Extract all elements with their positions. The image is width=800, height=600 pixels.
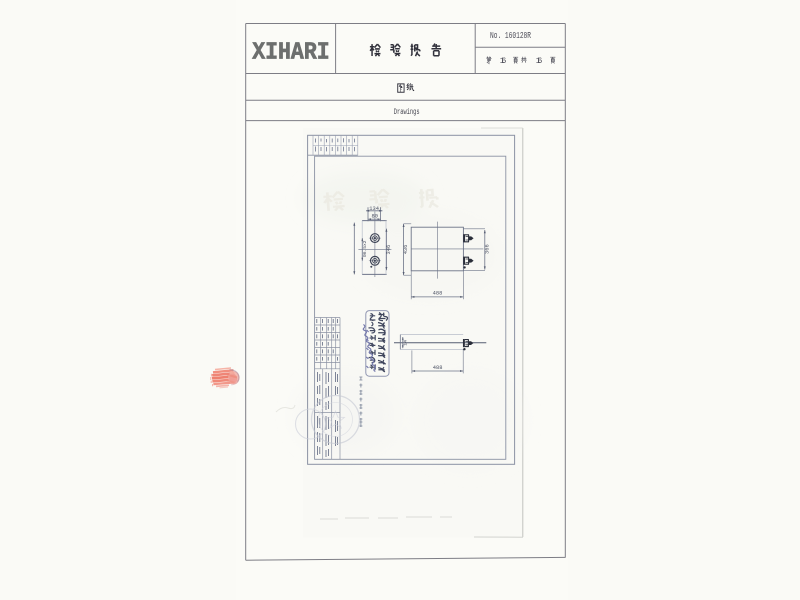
svg-text:366: 366 — [485, 244, 491, 254]
svg-text:14: 14 — [403, 340, 409, 346]
svg-text:16: 16 — [500, 57, 507, 66]
svg-text:06.5x2: 06.5x2 — [362, 240, 368, 257]
svg-text:134: 134 — [369, 206, 379, 212]
svg-text:436: 436 — [403, 245, 409, 255]
svg-text:488: 488 — [433, 291, 443, 297]
svg-text:80: 80 — [372, 214, 378, 220]
svg-text:No. 160128R: No. 160128R — [490, 30, 531, 41]
svg-text:Drawings: Drawings — [394, 107, 420, 117]
svg-text:346: 346 — [386, 245, 392, 255]
svg-text:16: 16 — [536, 57, 543, 66]
svg-text:XIHARI: XIHARI — [252, 40, 330, 67]
svg-text:488: 488 — [433, 365, 443, 371]
